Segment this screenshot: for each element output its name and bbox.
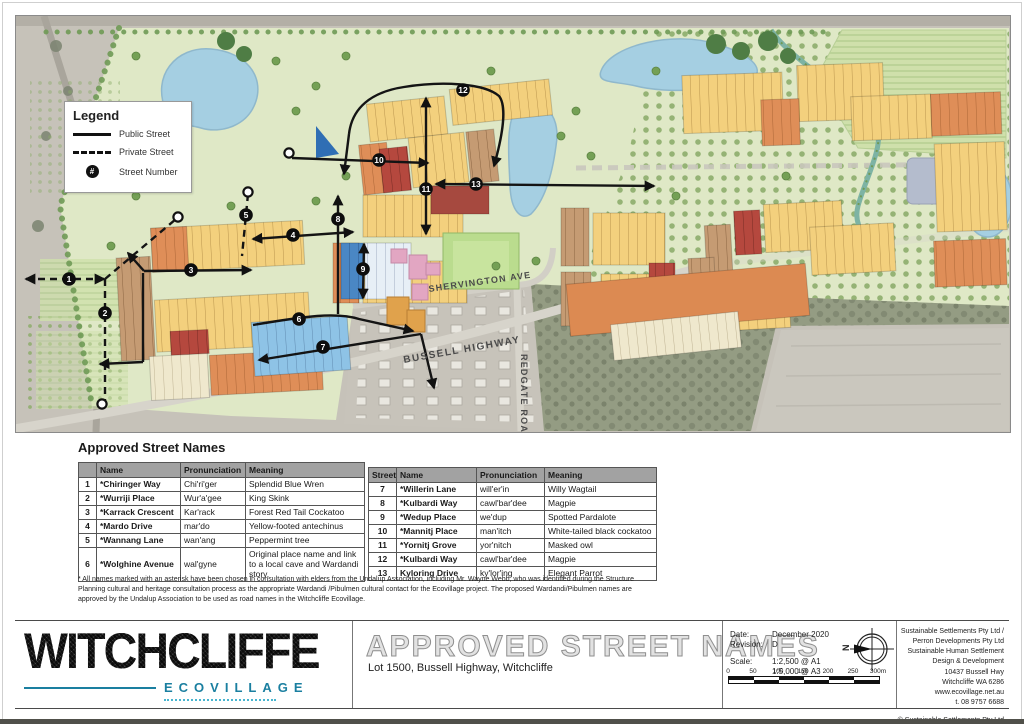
date-value: December 2020: [772, 630, 829, 640]
svg-text:9: 9: [361, 264, 366, 274]
legend-item-public-street: Public Street: [73, 129, 183, 139]
scale-label: Scale:: [730, 657, 772, 667]
site-plan-map: 1 2 3 4 5 6 7 8 9 10 11 12 13 SHERVINGTO…: [15, 15, 1011, 433]
farmland: [756, 328, 1009, 431]
table-row: 7*Willerin Lanewill'er'inWilly Wagtail: [369, 483, 657, 497]
svg-text:5: 5: [244, 210, 249, 220]
svg-text:8: 8: [336, 214, 341, 224]
table-header-row: Street Name Pronunciation Meaning: [369, 468, 657, 483]
logo-subtitle: ECOVILLAGE: [164, 680, 309, 695]
svg-text:10: 10: [374, 155, 384, 165]
titleblock-top-rule: [15, 620, 1009, 621]
map-canvas: 1 2 3 4 5 6 7 8 9 10 11 12 13 SHERVINGTO…: [16, 16, 1010, 432]
witchcliffe-logo: WITCHCLIFFE ECOVILLAGE: [24, 626, 344, 701]
community-lot: [431, 186, 489, 214]
redgate-road-label: REDGATE ROAD: [519, 354, 529, 432]
titleblock-divider: [352, 621, 353, 708]
legend-title: Legend: [73, 108, 183, 123]
table-row: 12*Kulbardi Waycawl'bar'deeMagpie: [369, 553, 657, 567]
company-info: Sustainable Settlements Pty Ltd / Perron…: [844, 627, 1004, 726]
logo-dotted-rule: [164, 699, 276, 701]
table-header-row: Name Pronunciation Meaning: [79, 463, 365, 478]
map-legend: Legend Public Street Private Street # St…: [64, 101, 192, 193]
solid-line-symbol: [73, 133, 111, 136]
svg-text:1: 1: [67, 274, 72, 284]
legend-item-street-number: # Street Number: [73, 165, 183, 178]
svg-text:3: 3: [189, 265, 194, 275]
street-names-table-left: Name Pronunciation Meaning 1*Chiringer W…: [78, 462, 365, 582]
table-row: 1*Chiringer WayChi'ri'gerSplendid Blue W…: [79, 478, 365, 492]
scale-a1-value: 1:2,500 @ A1: [772, 657, 821, 667]
table-row: 9*Wedup Placewe'dupSpotted Pardalote: [369, 511, 657, 525]
date-label: Date:: [730, 630, 772, 640]
logo-rule: [24, 687, 156, 689]
footnote: * All names marked with an asterisk have…: [78, 575, 643, 605]
legend-item-private-street: Private Street: [73, 147, 183, 157]
sheet-subtitle: Lot 1500, Bussell Highway, Witchcliffe: [368, 662, 553, 674]
svg-text:12: 12: [458, 85, 468, 95]
table-row: 3*Karrack CrescentKar'rackForest Red Tai…: [79, 506, 365, 520]
revision-label: Revision:: [730, 640, 772, 650]
table-row: 11*Yornitj Groveyor'nitchMasked owl: [369, 539, 657, 553]
dashed-line-symbol: [73, 151, 111, 154]
table-row: 10*Mannitj Placeman'itchWhite-tailed bla…: [369, 525, 657, 539]
table-row: 8*Kulbardi Waycawl'bar'deeMagpie: [369, 497, 657, 511]
table-row: 5*Wannang Lanewan'angPeppermint tree: [79, 534, 365, 548]
street-names-table-right: Street Name Pronunciation Meaning 7*Will…: [368, 467, 657, 581]
logo-wordmark: WITCHCLIFFE: [24, 626, 322, 676]
revision-value: D: [772, 640, 778, 650]
svg-text:13: 13: [471, 179, 481, 189]
street-names-heading: Approved Street Names: [78, 440, 225, 455]
table-row: 2*Wurriji PlaceWur'a'geeKing Skink: [79, 492, 365, 506]
svg-text:4: 4: [291, 230, 296, 240]
number-circle-symbol: #: [86, 165, 99, 178]
table-row: 4*Mardo Drivemar'doYellow-footed antechi…: [79, 520, 365, 534]
svg-text:11: 11: [422, 184, 431, 194]
scan-shadow: [0, 719, 1024, 724]
svg-text:6: 6: [297, 314, 302, 324]
svg-text:7: 7: [321, 342, 326, 352]
svg-text:2: 2: [103, 308, 108, 318]
